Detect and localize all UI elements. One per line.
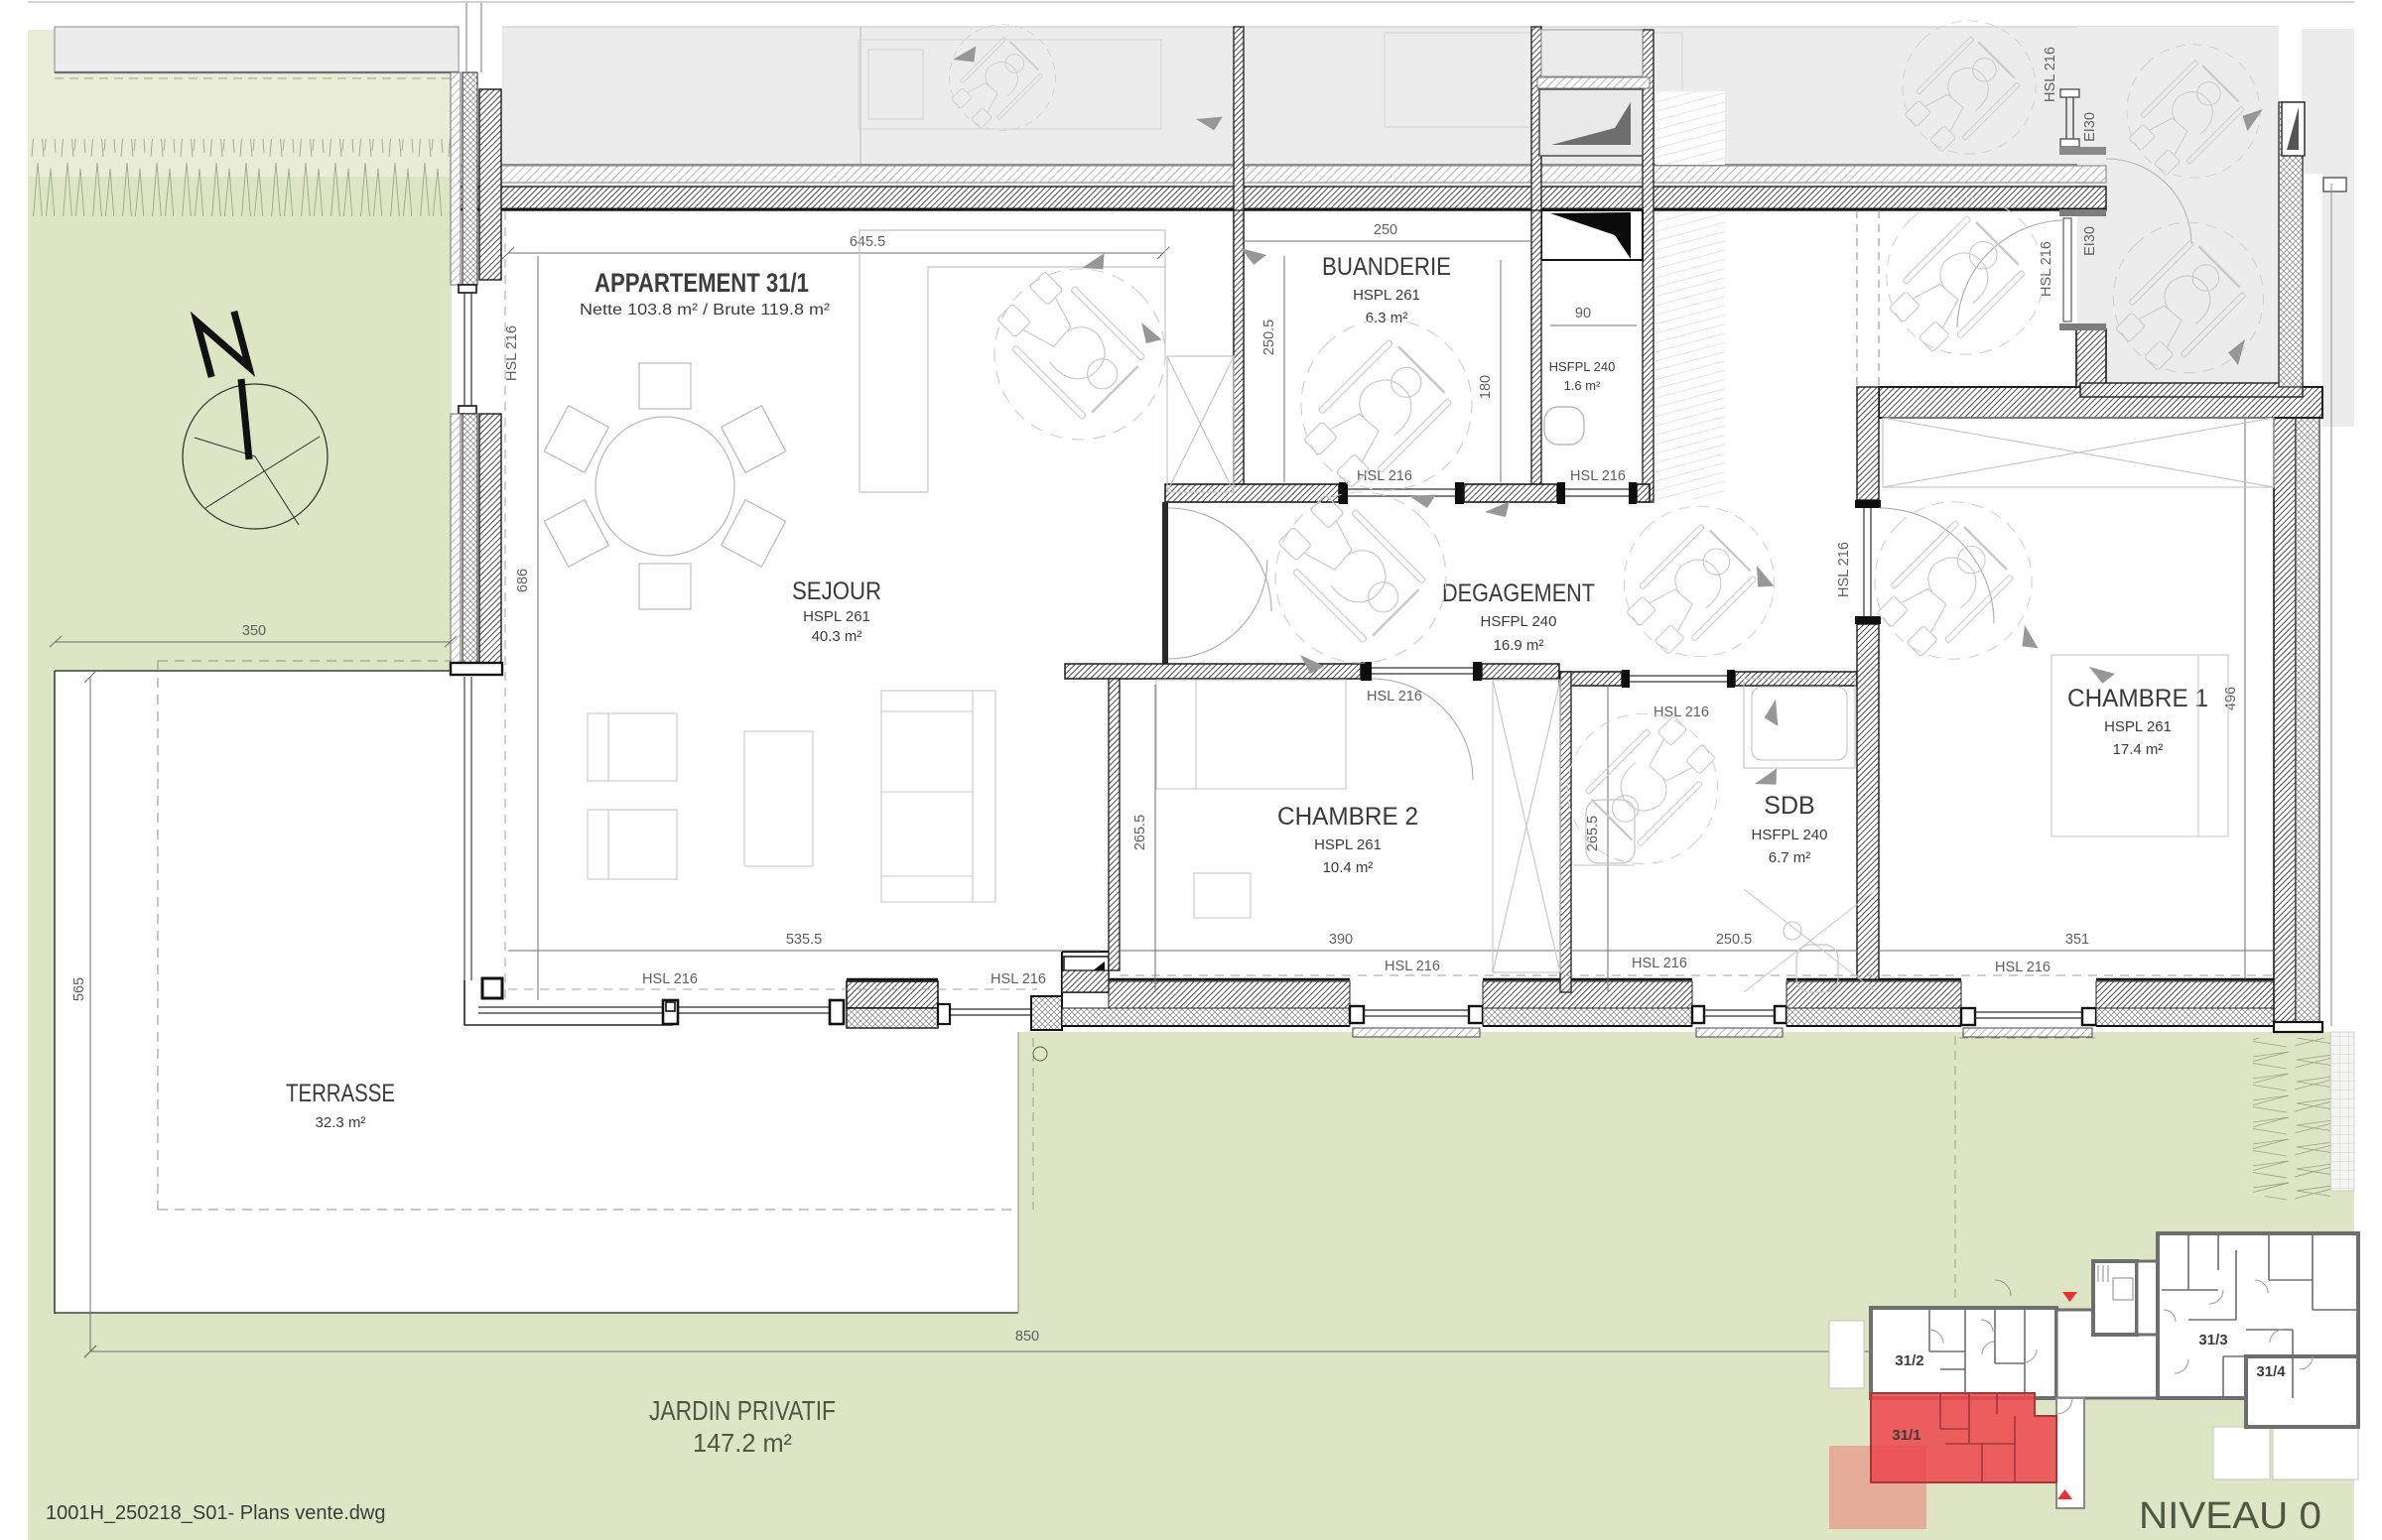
svg-text:645.5: 645.5 xyxy=(850,234,885,250)
svg-text:HSPL 261: HSPL 261 xyxy=(803,608,870,625)
svg-text:HSL 216: HSL 216 xyxy=(991,971,1046,987)
svg-text:HSL 216: HSL 216 xyxy=(642,971,698,987)
svg-text:17.4 m²: 17.4 m² xyxy=(2113,741,2164,758)
svg-text:HSL 216: HSL 216 xyxy=(1385,959,1440,974)
svg-text:HSL 216: HSL 216 xyxy=(504,325,520,381)
svg-text:EI30: EI30 xyxy=(2082,226,2098,256)
svg-text:565: 565 xyxy=(71,977,87,1001)
svg-text:351: 351 xyxy=(2065,932,2089,948)
svg-text:CHAMBRE 2: CHAMBRE 2 xyxy=(1277,803,1418,831)
svg-text:JARDIN PRIVATIF: JARDIN PRIVATIF xyxy=(649,1395,836,1426)
svg-text:SDB: SDB xyxy=(1764,792,1814,820)
svg-text:90: 90 xyxy=(1575,306,1591,321)
svg-text:HSL 216: HSL 216 xyxy=(1367,689,1422,705)
svg-text:1.6 m²: 1.6 m² xyxy=(1564,378,1602,393)
svg-text:HSPL 261: HSPL 261 xyxy=(2104,718,2172,735)
svg-text:265.5: 265.5 xyxy=(1585,816,1601,851)
svg-text:180: 180 xyxy=(1478,375,1494,399)
svg-text:HSFPL 240: HSFPL 240 xyxy=(1549,359,1616,374)
svg-text:HSL 216: HSL 216 xyxy=(1836,542,1852,597)
svg-text:Nette 103.8 m² / Brute 119.8 m: Nette 103.8 m² / Brute 119.8 m² xyxy=(580,302,831,319)
svg-text:HSPL 261: HSPL 261 xyxy=(1314,836,1382,853)
svg-text:HSPL 261: HSPL 261 xyxy=(1353,287,1420,304)
svg-text:HSL 216: HSL 216 xyxy=(1654,705,1709,720)
svg-text:250.5: 250.5 xyxy=(1261,320,1277,355)
svg-text:496: 496 xyxy=(2223,687,2239,710)
svg-text:265.5: 265.5 xyxy=(1132,815,1148,850)
svg-text:250.5: 250.5 xyxy=(1716,932,1752,948)
svg-text:6.7 m²: 6.7 m² xyxy=(1769,849,1811,866)
svg-text:HSFPL 240: HSFPL 240 xyxy=(1481,613,1557,630)
svg-text:32.3 m²: 32.3 m² xyxy=(316,1114,366,1131)
svg-text:6.3 m²: 6.3 m² xyxy=(1366,310,1408,326)
svg-text:APPARTEMENT 31/1: APPARTEMENT 31/1 xyxy=(595,268,809,298)
svg-text:HSL 216: HSL 216 xyxy=(1995,960,2051,975)
svg-text:BUANDERIE: BUANDERIE xyxy=(1322,253,1451,281)
svg-text:HSFPL 240: HSFPL 240 xyxy=(1752,827,1828,843)
svg-text:CHAMBRE 1: CHAMBRE 1 xyxy=(2067,685,2208,712)
svg-text:HSL 216: HSL 216 xyxy=(1570,468,1626,484)
svg-text:250: 250 xyxy=(1374,222,1397,238)
svg-text:HSL 216: HSL 216 xyxy=(2039,241,2054,297)
svg-text:DEGAGEMENT: DEGAGEMENT xyxy=(1442,579,1595,607)
svg-text:535.5: 535.5 xyxy=(786,932,822,948)
svg-text:10.4 m²: 10.4 m² xyxy=(1323,859,1374,876)
svg-text:31/1: 31/1 xyxy=(1892,1427,1920,1444)
svg-text:390: 390 xyxy=(1329,932,1353,948)
svg-text:16.9 m²: 16.9 m² xyxy=(1494,637,1544,654)
svg-text:31/4: 31/4 xyxy=(2256,1363,2286,1380)
svg-text:HSL 216: HSL 216 xyxy=(2043,47,2058,102)
svg-text:NIVEAU 0: NIVEAU 0 xyxy=(2139,1495,2321,1537)
svg-text:350: 350 xyxy=(242,623,266,639)
svg-text:1001H_250218_S01- Plans vente.: 1001H_250218_S01- Plans vente.dwg xyxy=(46,1502,385,1524)
svg-text:31/2: 31/2 xyxy=(1895,1352,1923,1369)
svg-text:EI30: EI30 xyxy=(2082,112,2098,142)
svg-text:31/3: 31/3 xyxy=(2198,1332,2227,1348)
svg-text:TERRASSE: TERRASSE xyxy=(286,1080,395,1107)
svg-text:850: 850 xyxy=(1015,1329,1039,1345)
svg-text:686: 686 xyxy=(515,569,531,592)
svg-text:HSL 216: HSL 216 xyxy=(1632,956,1687,971)
svg-text:147.2 m²: 147.2 m² xyxy=(693,1428,792,1458)
svg-text:40.3 m²: 40.3 m² xyxy=(812,628,862,645)
svg-text:SEJOUR: SEJOUR xyxy=(792,577,881,605)
